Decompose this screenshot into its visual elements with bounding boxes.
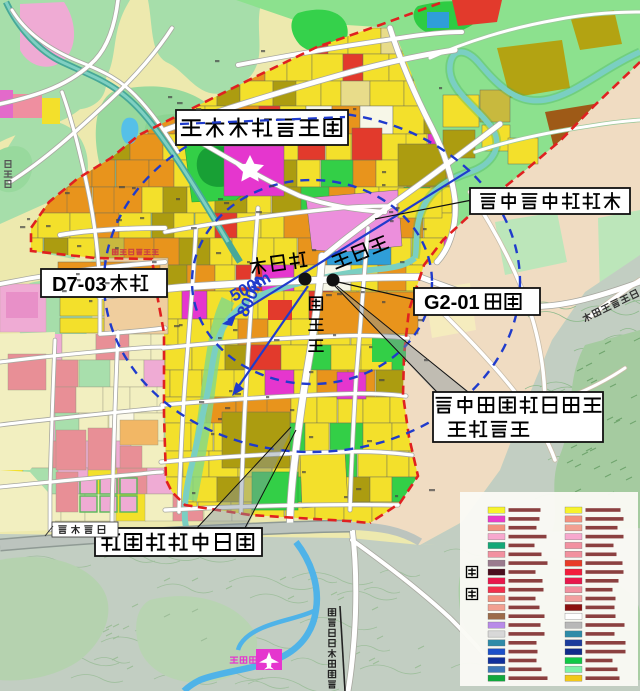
svg-text:G2-01: G2-01 xyxy=(424,292,480,314)
svg-text:D7-03: D7-03 xyxy=(52,274,106,296)
